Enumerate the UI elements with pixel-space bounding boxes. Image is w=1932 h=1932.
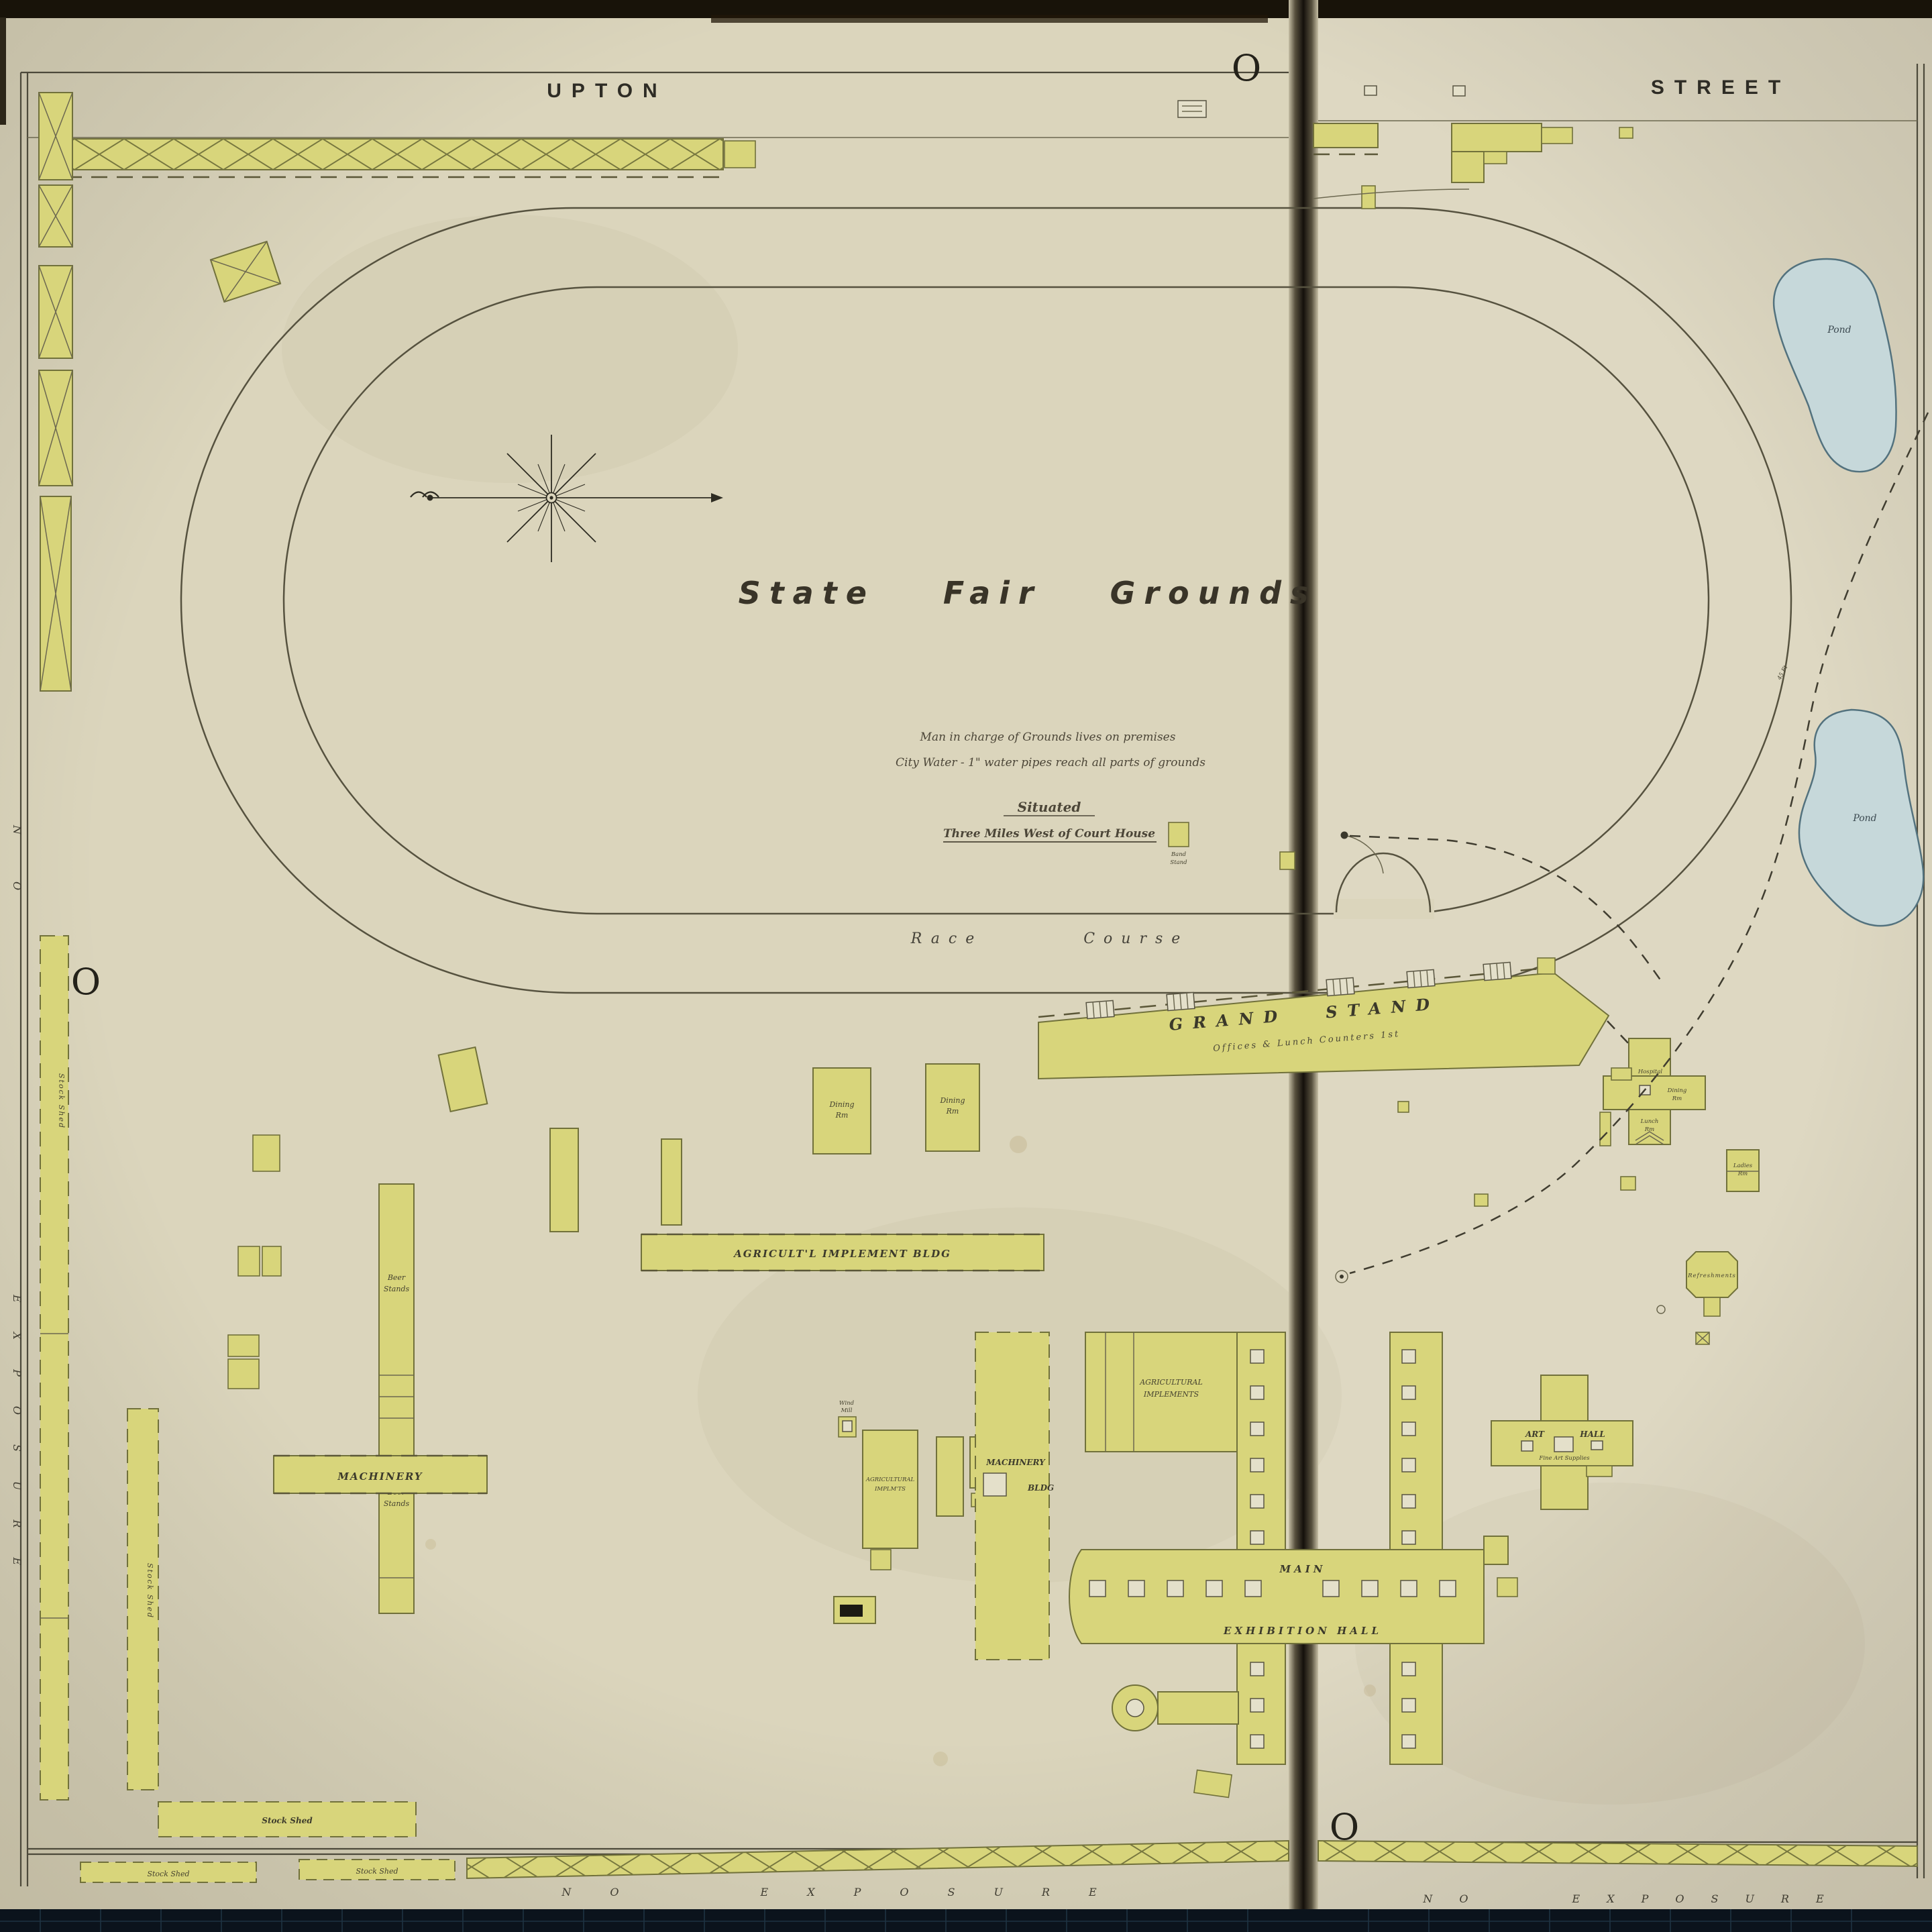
dining-2-label-b: Rm bbox=[946, 1107, 959, 1116]
ladies-label-b: Rm bbox=[1737, 1171, 1748, 1177]
stock-shed-row-label-1: Stock Shed bbox=[147, 1870, 189, 1878]
hall-right-column bbox=[1390, 1332, 1442, 1764]
race-course-label: Race Course bbox=[910, 930, 1189, 947]
hall-label: HALL bbox=[1579, 1430, 1605, 1439]
ladies-label-a: Ladies bbox=[1733, 1163, 1753, 1169]
refreshments-label: Refreshments bbox=[1687, 1273, 1736, 1279]
cross-dining-label-b: Rm bbox=[1672, 1095, 1682, 1102]
agric-impl-label-b: IMPLEMENTS bbox=[1143, 1390, 1199, 1399]
sanborn-map-scan: UPTON STREET O O O Band Stand Race Cours… bbox=[0, 0, 1932, 1932]
left-long-stock-shed bbox=[40, 936, 68, 1800]
stock-shed-upper: Stock Shed bbox=[158, 1802, 416, 1837]
scales-building bbox=[834, 1597, 875, 1623]
ladies-room-building: Ladies Rm bbox=[1727, 1150, 1759, 1191]
dining-2-label-a: Dining bbox=[939, 1096, 965, 1105]
machinery-bldg-vertical: MACHINERY BLDG bbox=[975, 1332, 1054, 1660]
small-structure-top bbox=[1178, 101, 1206, 117]
note-line-1: Man in charge of Grounds lives on premis… bbox=[920, 731, 1176, 744]
no-exposure-bottom-right: NO EXPOSURE bbox=[1422, 1892, 1850, 1905]
machinery-building-small: MACHINERY bbox=[274, 1456, 487, 1493]
dining-1-label-a: Dining bbox=[828, 1100, 854, 1109]
agric-small-label-b: IMPLM'TS bbox=[874, 1486, 906, 1493]
agricultural-implement-building: AGRICULT'L IMPLEMENT BLDG bbox=[641, 1234, 1044, 1271]
situated-text: Three Miles West of Court House bbox=[943, 827, 1155, 841]
map-title: State Fair Grounds bbox=[739, 575, 1318, 611]
machinery-label: MACHINERY bbox=[337, 1470, 423, 1483]
dining-room-1: Dining Rm bbox=[813, 1068, 871, 1154]
art-label: ART bbox=[1525, 1430, 1545, 1439]
paper-background bbox=[0, 0, 1932, 1932]
cutting-mat bbox=[0, 1909, 1932, 1932]
main-label: MAIN bbox=[1279, 1563, 1326, 1575]
pond-upper-label: Pond bbox=[1827, 325, 1851, 335]
beer-stands-label-2b: Stands bbox=[384, 1499, 410, 1508]
dining-1-label-b: Rm bbox=[835, 1111, 849, 1120]
cross-dining-label-a: Dining bbox=[1667, 1087, 1687, 1094]
wind-mill-label-a: Wind bbox=[839, 1400, 855, 1407]
dining-room-2: Dining Rm bbox=[926, 1064, 979, 1151]
small-track-building bbox=[1280, 852, 1295, 869]
art-hall-sublabel: Fine Art Supplies bbox=[1538, 1455, 1590, 1462]
no-exposure-bottom-left: NO EXPOSURE bbox=[561, 1886, 1135, 1898]
agric-small-label-a: AGRICULTURAL bbox=[865, 1477, 915, 1483]
street-label-right: STREET bbox=[1651, 76, 1790, 99]
street-label-upton: UPTON bbox=[547, 80, 667, 102]
lunch-label-a: Lunch bbox=[1640, 1118, 1659, 1125]
beer-stands-building: Beer Stands Beer Stands bbox=[379, 1184, 414, 1613]
no-exposure-left-margin-exposure: EXPOSURE bbox=[11, 1294, 23, 1595]
mid-strip-stock-shed-label: Stock Shed bbox=[146, 1563, 154, 1619]
left-strip-stock-shed-label: Stock Shed bbox=[57, 1073, 66, 1129]
hospital-label: Hospital bbox=[1638, 1069, 1663, 1075]
agl-implement-label: AGRICULT'L IMPLEMENT BLDG bbox=[733, 1248, 951, 1260]
wind-mill-label-b: Mill bbox=[841, 1407, 853, 1414]
map-canvas: UPTON STREET O O O Band Stand Race Cours… bbox=[0, 0, 1932, 1932]
agricultural-implements-block: AGRICULTURAL IMPLEMENTS bbox=[1085, 1332, 1237, 1452]
agricultural-implements-small: AGRICULTURAL IMPLM'TS bbox=[863, 1430, 918, 1570]
band-stand-building bbox=[1169, 822, 1189, 847]
no-exposure-left-margin-no: NO bbox=[11, 824, 23, 937]
stock-shed-row-label-2: Stock Shed bbox=[356, 1867, 398, 1876]
plate-letter-left: O bbox=[71, 961, 101, 1003]
pond-lower-label: Pond bbox=[1852, 813, 1876, 824]
band-stand-label-2: Stand bbox=[1170, 859, 1187, 866]
note-line-2: City Water - 1" water pipes reach all pa… bbox=[896, 756, 1205, 769]
band-stand-label-1: Band bbox=[1171, 851, 1187, 858]
machinery-bldg-label-a: MACHINERY bbox=[985, 1458, 1046, 1467]
plate-letter-top: O bbox=[1232, 47, 1261, 89]
machinery-bldg-label-b: BLDG bbox=[1027, 1483, 1054, 1493]
round-structure bbox=[1112, 1685, 1238, 1731]
beer-stands-label-1a: Beer bbox=[387, 1273, 406, 1282]
exhibition-hall-label: EXHIBITION HALL bbox=[1223, 1625, 1382, 1637]
stock-shed-upper-label: Stock Shed bbox=[262, 1816, 313, 1825]
situated-heading: Situated bbox=[1018, 799, 1081, 815]
agric-impl-label-a: AGRICULTURAL bbox=[1139, 1378, 1203, 1387]
beer-stands-label-1b: Stands bbox=[384, 1285, 410, 1293]
gate-point bbox=[1341, 832, 1348, 839]
